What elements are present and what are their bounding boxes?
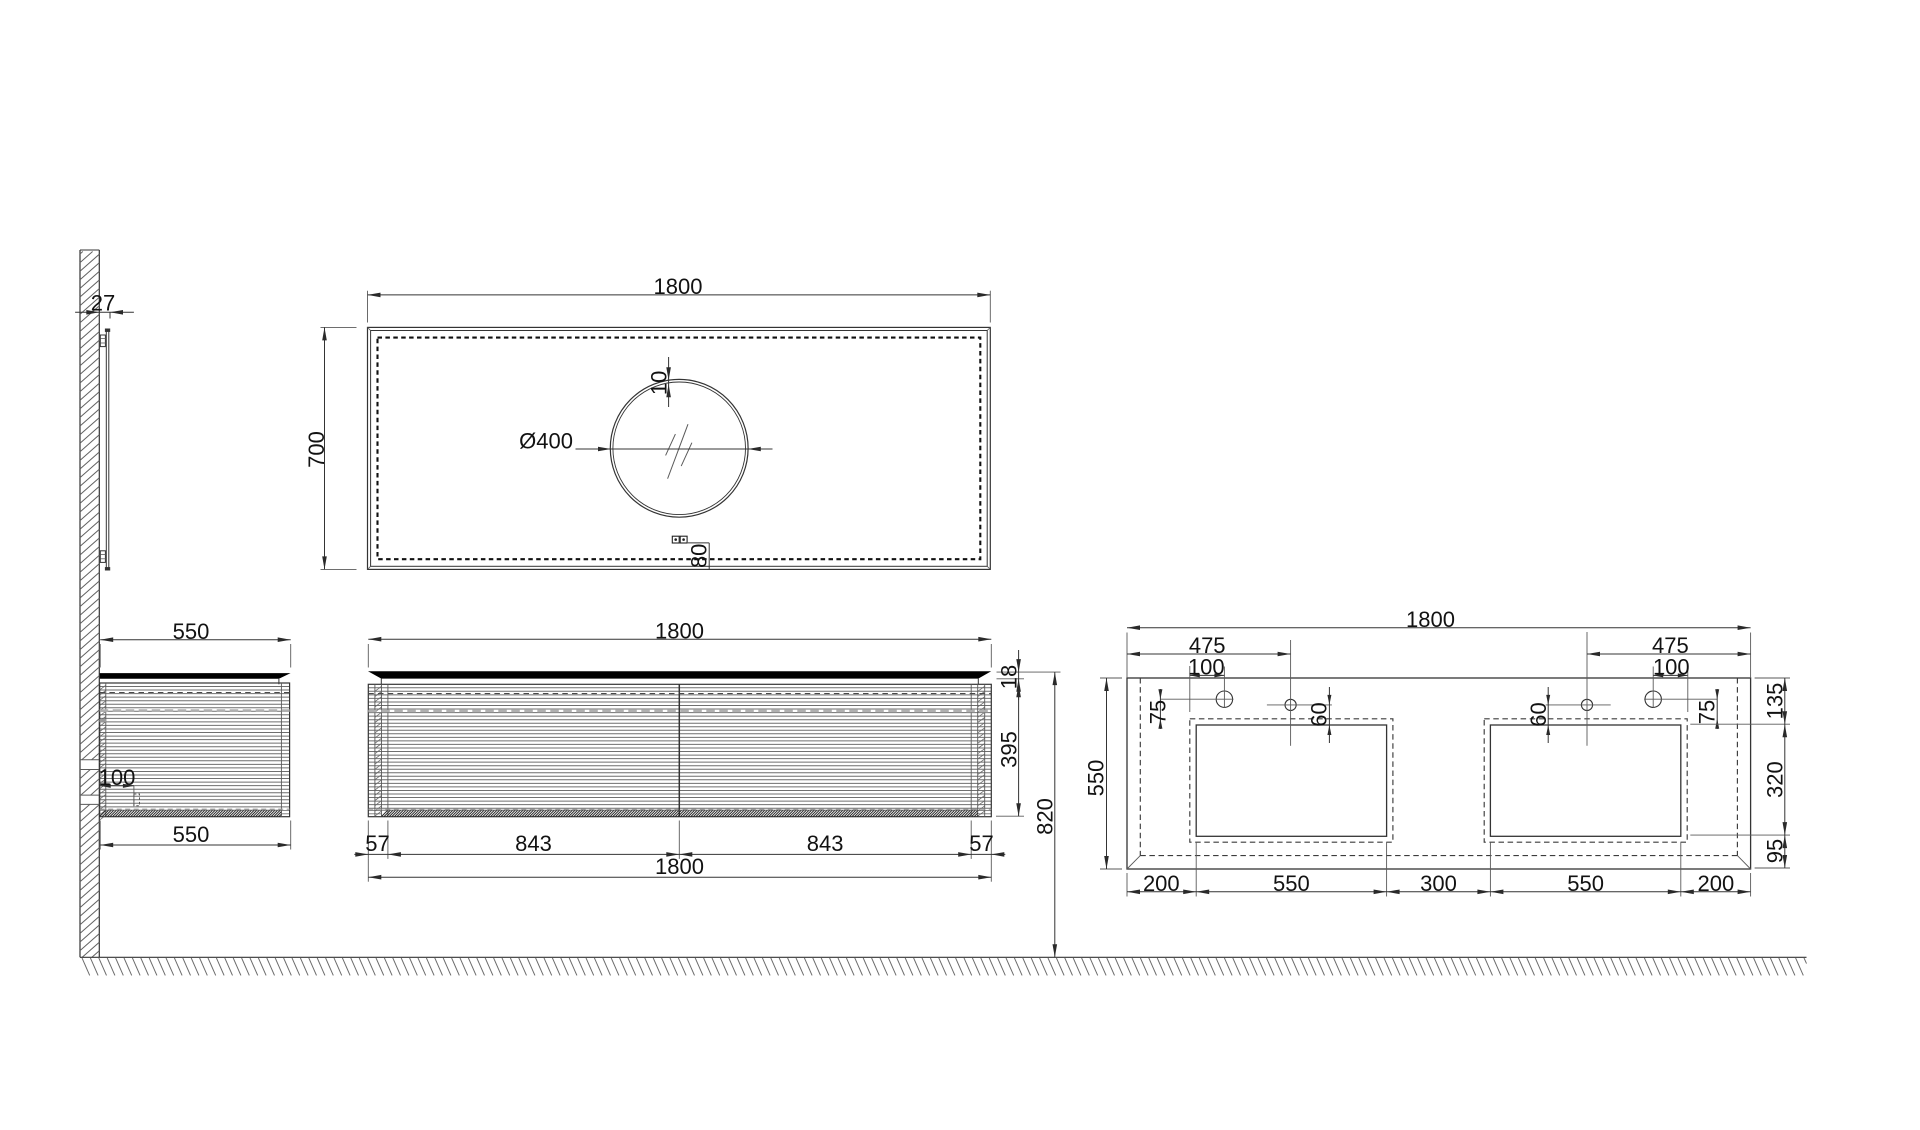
- svg-text:395: 395: [997, 731, 1022, 768]
- svg-text:57: 57: [969, 831, 993, 856]
- svg-text:57: 57: [365, 831, 389, 856]
- svg-text:135: 135: [1763, 683, 1788, 720]
- svg-text:550: 550: [1273, 871, 1310, 896]
- svg-text:95: 95: [1763, 839, 1788, 863]
- svg-text:75: 75: [1695, 700, 1720, 724]
- svg-text:1800: 1800: [1406, 607, 1455, 632]
- svg-text:1800: 1800: [655, 854, 704, 879]
- svg-text:843: 843: [807, 831, 844, 856]
- svg-text:820: 820: [1033, 798, 1058, 835]
- svg-text:550: 550: [173, 619, 210, 644]
- svg-text:550: 550: [1084, 760, 1109, 797]
- svg-text:18: 18: [997, 665, 1022, 689]
- svg-text:100: 100: [1653, 655, 1690, 680]
- svg-text:60: 60: [1307, 702, 1332, 726]
- svg-text:27: 27: [91, 291, 115, 316]
- svg-text:700: 700: [304, 431, 329, 468]
- svg-text:100: 100: [1188, 655, 1225, 680]
- svg-text:200: 200: [1698, 871, 1735, 896]
- svg-text:80: 80: [687, 544, 712, 568]
- svg-text:843: 843: [515, 831, 552, 856]
- svg-text:1800: 1800: [655, 619, 704, 644]
- svg-text:320: 320: [1763, 761, 1788, 798]
- svg-text:550: 550: [173, 822, 210, 847]
- svg-text:60: 60: [1526, 702, 1551, 726]
- svg-text:Ø400: Ø400: [519, 428, 573, 453]
- svg-text:200: 200: [1143, 871, 1180, 896]
- svg-text:550: 550: [1567, 871, 1604, 896]
- svg-text:75: 75: [1146, 700, 1171, 724]
- svg-text:100: 100: [99, 765, 136, 790]
- svg-text:300: 300: [1420, 871, 1457, 896]
- svg-text:10: 10: [647, 371, 672, 395]
- svg-text:1800: 1800: [654, 274, 703, 299]
